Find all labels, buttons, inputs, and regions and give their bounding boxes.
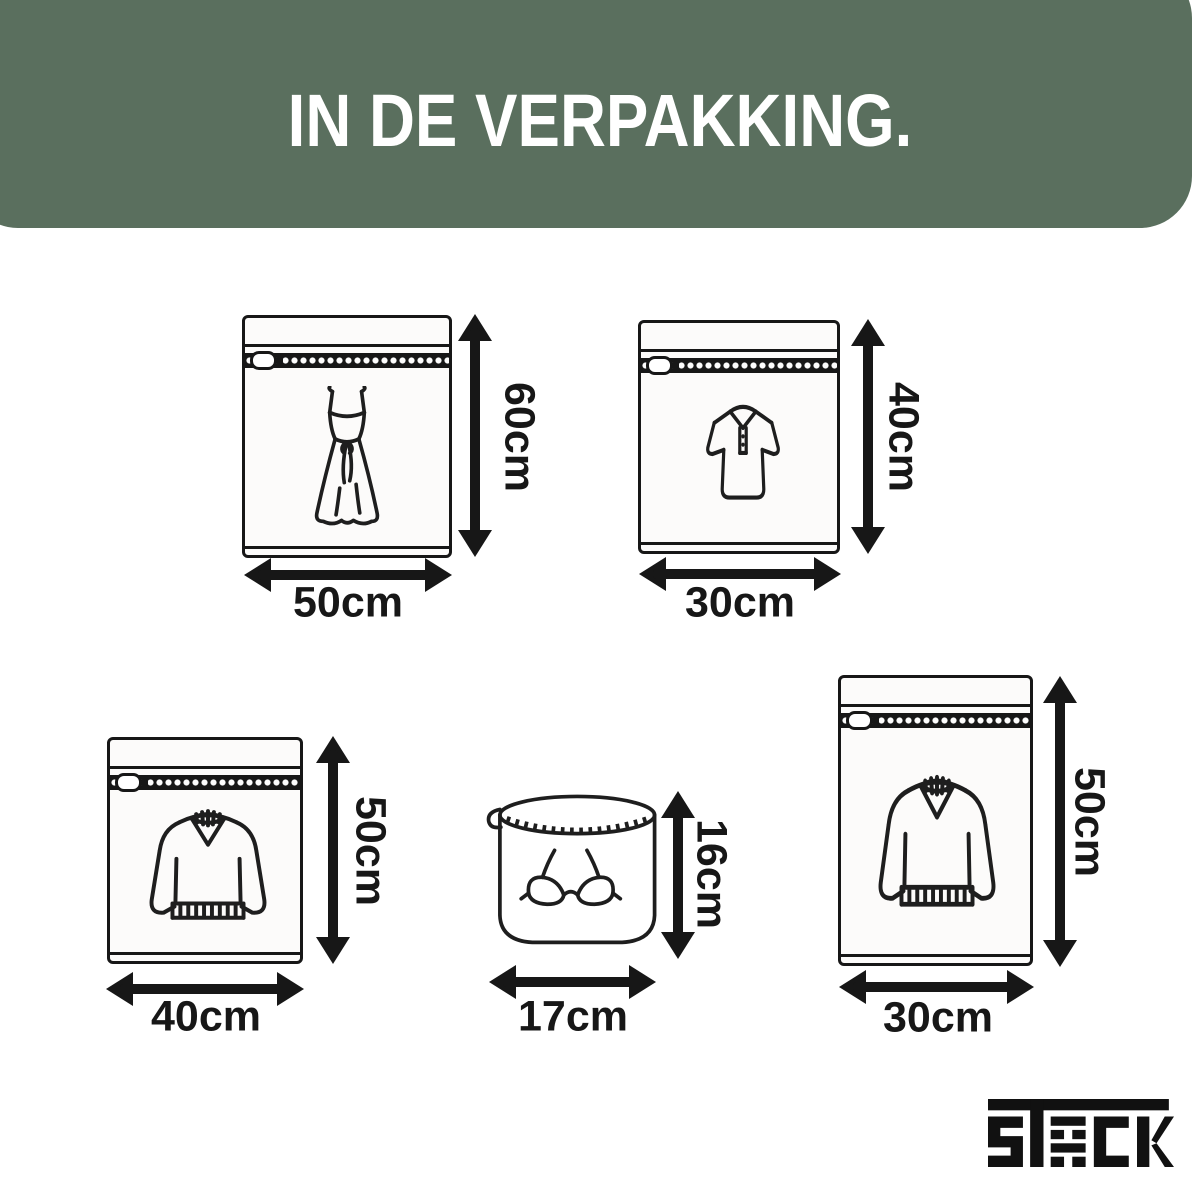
height-dimension-label: 40cm bbox=[882, 382, 925, 492]
height-dimension-label: 50cm bbox=[349, 796, 392, 906]
wash-bag-dress bbox=[242, 315, 452, 558]
width-dimension-label: 40cm bbox=[151, 996, 261, 1039]
zipper-seam bbox=[110, 766, 300, 769]
zipper-slider bbox=[646, 356, 673, 375]
bag-bottom-seam bbox=[841, 954, 1030, 957]
bag-bottom-seam bbox=[641, 542, 837, 545]
page-title: IN DE VERPAKKING. bbox=[84, 84, 1116, 158]
dress-icon bbox=[306, 386, 388, 528]
sweater-icon bbox=[863, 764, 1011, 926]
sweater-icon bbox=[134, 800, 282, 936]
stack-logo bbox=[988, 1099, 1174, 1167]
stack-logo-glyphs bbox=[988, 1099, 1174, 1167]
zipper-seam bbox=[641, 349, 837, 352]
zipper bbox=[110, 766, 300, 790]
height-arrow bbox=[458, 314, 492, 557]
bag-bottom-seam bbox=[110, 952, 300, 955]
zipper-slider bbox=[846, 711, 873, 730]
zipper bbox=[641, 349, 837, 373]
width-dimension-label: 30cm bbox=[685, 582, 795, 625]
height-dimension-label: 50cm bbox=[1068, 767, 1111, 877]
width-dimension-label: 30cm bbox=[883, 997, 993, 1040]
zipper-slider bbox=[115, 773, 142, 792]
wash-bag-polo bbox=[638, 320, 840, 554]
zipper bbox=[245, 344, 449, 368]
infographic-canvas: IN DE VERPAKKING. 60cm 50cm bbox=[0, 0, 1200, 1200]
bra-icon bbox=[521, 850, 620, 904]
wash-bag-sweater-large bbox=[107, 737, 303, 964]
bag-bottom-seam bbox=[245, 546, 449, 549]
zipper bbox=[841, 704, 1030, 728]
width-dimension-label: 50cm bbox=[293, 582, 403, 625]
polo-shirt-icon bbox=[699, 397, 787, 511]
height-dimension-label: 60cm bbox=[498, 382, 541, 492]
height-arrow bbox=[316, 736, 350, 964]
wash-bag-bra bbox=[486, 789, 662, 961]
wash-bag-sweater-tall bbox=[838, 675, 1033, 966]
zipper-seam bbox=[841, 704, 1030, 707]
zipper-slider bbox=[250, 351, 277, 370]
height-dimension-label: 16cm bbox=[690, 819, 733, 929]
width-dimension-label: 17cm bbox=[518, 996, 628, 1039]
zipper-seam bbox=[245, 344, 449, 347]
